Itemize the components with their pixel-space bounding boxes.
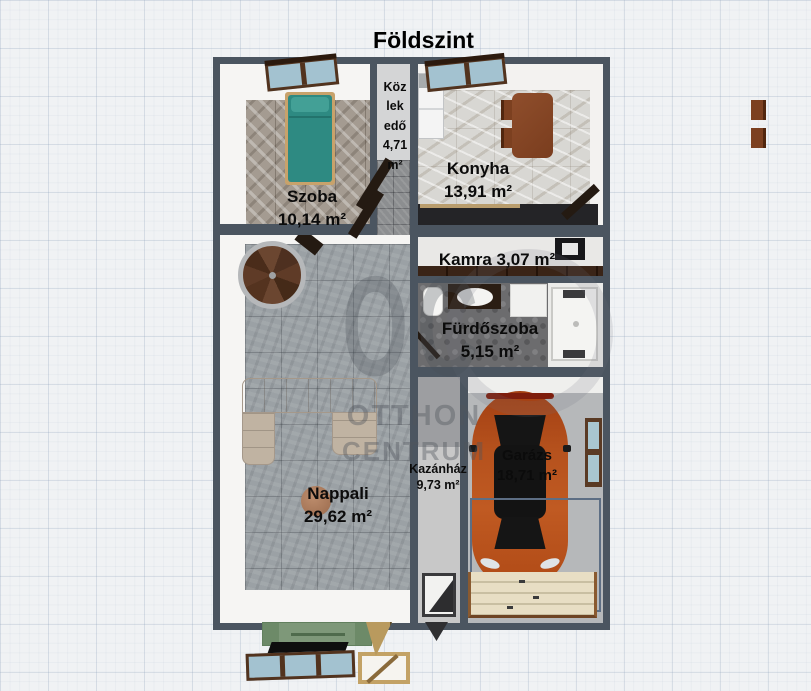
corner-sofa-right-arm (332, 412, 377, 455)
entrance-arrow-kazanhaz (425, 622, 448, 641)
spiral-staircase (238, 241, 306, 309)
bathtub-end (563, 290, 585, 298)
wall-furdoszoba-garazs (410, 367, 603, 377)
entrance-door-leaf (366, 654, 398, 684)
kazanhaz-door (422, 573, 456, 617)
counter-wood-edge (420, 204, 520, 208)
car-mirror (563, 445, 571, 452)
car-rear-window (486, 415, 554, 447)
fridge-divider (419, 108, 443, 110)
car-mirror (469, 445, 477, 452)
kozlekedo-upper-floor (377, 64, 410, 160)
corner-sofa-left-arm (242, 412, 275, 465)
kamra-shelf (418, 266, 603, 276)
kazanhaz-upper-area (418, 377, 460, 447)
garazs-window (585, 418, 602, 487)
wall-center-vertical (410, 64, 418, 623)
bed (285, 92, 335, 185)
room-garazs (468, 377, 603, 623)
garage-door (468, 572, 597, 618)
dining-table (512, 93, 553, 158)
wall-kamra-furdoszoba (418, 276, 603, 283)
window-mullion (464, 63, 471, 85)
garage-door-handle (507, 606, 513, 609)
shower-corner (510, 284, 547, 317)
toilet (423, 287, 443, 316)
corner-sofa-back (242, 378, 377, 413)
bathtub-end (563, 350, 585, 358)
dining-chair (751, 128, 766, 148)
room-kamra (418, 237, 603, 276)
entrance-door (358, 652, 410, 684)
room-kazanhaz (418, 377, 460, 623)
kazanhaz-door-leaf (429, 580, 453, 612)
window-mullion (316, 654, 322, 675)
window-pane (588, 455, 599, 482)
window-mullion (280, 656, 286, 677)
garazs-top-margin (468, 377, 603, 393)
room-furdoszoba (418, 283, 603, 367)
sink (457, 288, 493, 306)
nappali-window (246, 650, 356, 681)
wall-konyha-kamra (418, 225, 603, 237)
garage-door-handle (533, 596, 539, 599)
bed-pillow (291, 97, 329, 112)
bed-blanket-line (289, 116, 331, 118)
bathtub (551, 287, 598, 361)
kamra-freezer (555, 238, 585, 260)
dining-chair (751, 100, 766, 120)
floorplan: Szoba 10,14 m² Köz lek edő 4,71 m² Konyh… (213, 57, 610, 630)
floor-title: Földszint (225, 27, 622, 54)
window-pane (588, 422, 599, 449)
room-nappali (220, 235, 410, 623)
tv-cabinet-detail (291, 633, 345, 636)
bathtub-drain (573, 321, 579, 327)
floorplan-page: { "title": "Földszint", "watermark": { "… (0, 0, 811, 691)
window-mullion (300, 63, 307, 85)
garage-door-handle (519, 580, 525, 583)
sink-vanity (448, 284, 501, 309)
staircase-center-post (269, 272, 276, 279)
kamra-freezer-lid (562, 243, 578, 255)
car-taillight-strip (486, 393, 554, 399)
wall-kazanhaz-garazs (460, 377, 468, 623)
coffee-table (301, 486, 331, 516)
